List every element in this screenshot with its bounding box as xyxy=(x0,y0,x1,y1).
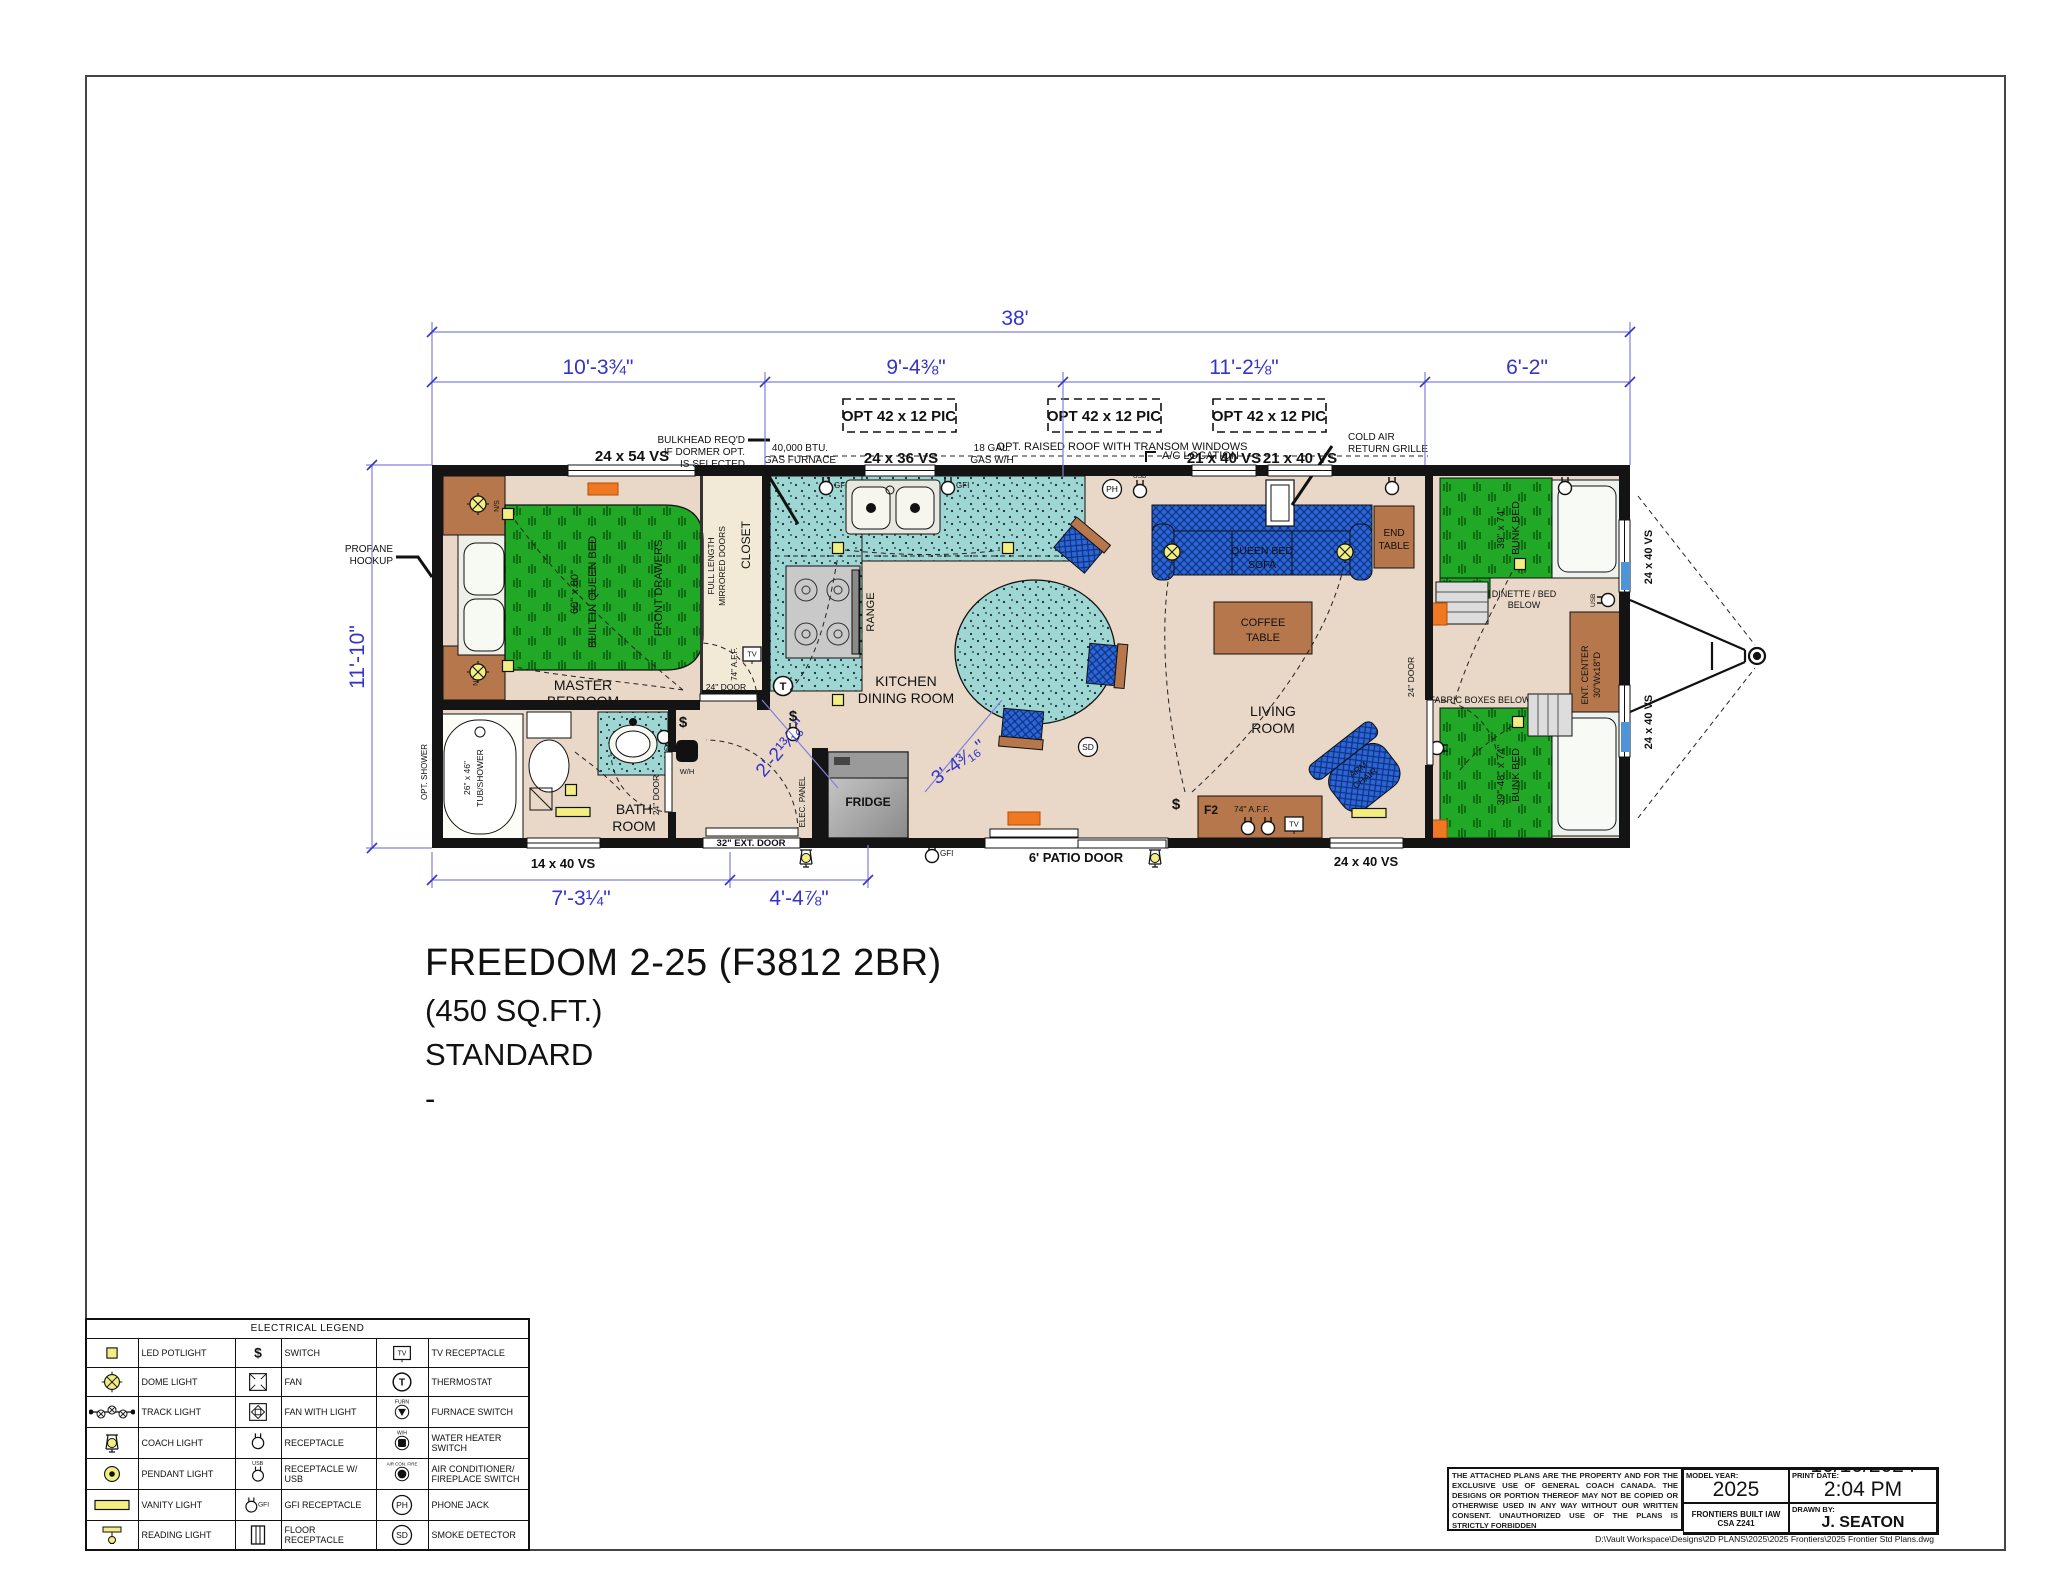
track-light-icon xyxy=(89,1399,135,1425)
legend-label: PENDANT LIGHT xyxy=(138,1459,235,1490)
ent-center-label-2: 30"Wx18"D xyxy=(1592,652,1602,698)
tv-receptacle-icon xyxy=(379,1340,425,1366)
elec-panel-label: ELEC. PANEL xyxy=(798,776,807,828)
door-label-patio: 6' PATIO DOOR xyxy=(1029,850,1124,865)
legend-header: ELECTRICAL LEGEND xyxy=(86,1319,529,1339)
legend-label: AIR CONDITIONER/ FIREPLACE SWITCH xyxy=(428,1459,529,1490)
queen-bed-label: BUILT IN QUEEN BED xyxy=(587,536,599,648)
window-24x40-bottom xyxy=(1330,838,1403,848)
drawn-by-cell: DRAWN BY: J. SEATON xyxy=(1789,1503,1937,1533)
queen-bed-size-label: 60" x 80" xyxy=(569,570,581,614)
window-label-14x40: 14 x 40 VS xyxy=(531,856,596,871)
ent-center-label-1: ENT. CENTER xyxy=(1580,645,1590,705)
legend-label: SWITCH xyxy=(281,1339,376,1368)
furnace-note-1: 40,000 BTU. xyxy=(772,443,828,454)
fan-with-light-icon xyxy=(238,1399,278,1425)
ac-location-note: A/C LOCATION xyxy=(1162,450,1239,462)
legend-label: THERMOSTAT xyxy=(428,1368,529,1397)
plan-title: FREEDOM 2-25 (F3812 2BR) xyxy=(425,942,942,985)
opt-pic-label-1: OPT 42 x 12 PIC xyxy=(842,408,956,425)
dinette-label-1: DINETTE / BED xyxy=(1492,589,1557,599)
title-block: FREEDOM 2-25 (F3812 2BR) (450 SQ.FT.) ST… xyxy=(425,942,942,1117)
legend-label: VANITY LIGHT xyxy=(138,1490,235,1521)
legend-label: FAN xyxy=(281,1368,376,1397)
fan-icon xyxy=(238,1369,278,1395)
bulkhead-note-1: BULKHEAD REQ'D xyxy=(658,435,746,446)
build-standard-text: FRONTIERS BUILT IAW CSA Z241 xyxy=(1684,1510,1788,1528)
reading-light-icon xyxy=(89,1521,135,1549)
dim-seg2: 9'-4⅜" xyxy=(886,356,945,379)
dim-bottom1: 7'-3¼" xyxy=(551,887,610,910)
legend-label: RECEPTACLE W/ USB xyxy=(281,1459,376,1490)
room-label-bath-1: BATH xyxy=(616,801,652,817)
floor-receptacle-icon xyxy=(238,1522,278,1548)
opt-shower-label: OPT. SHOWER xyxy=(420,744,429,800)
window-label-24x40-bottom: 24 x 40 VS xyxy=(1334,854,1399,869)
ac-fireplace-switch-icon xyxy=(379,1459,425,1489)
dinette-label-2: BELOW xyxy=(1508,600,1541,610)
water-heater-switch-icon xyxy=(379,1428,425,1458)
bunk-top-label: BUNK BED xyxy=(1510,501,1522,555)
door-label-bunk: 24" DOOR xyxy=(1406,657,1416,697)
drawn-by-label: DRAWN BY: xyxy=(1792,1505,1835,1514)
floor-plan-sheet: GFI USB $ SD PH T TV W/H FURN AIR CON. F… xyxy=(0,0,2048,1583)
legend-label: TV RECEPTACLE xyxy=(428,1339,529,1368)
phone-jack-icon xyxy=(379,1492,425,1518)
receptacle-icon xyxy=(238,1429,278,1457)
f2-label: F2 xyxy=(1204,803,1218,817)
model-year-cell: MODEL YEAR: 2025 xyxy=(1683,1469,1789,1503)
led-potlight-icon xyxy=(89,1340,135,1366)
dim-overall: 38' xyxy=(1001,307,1028,330)
tub-label: TUB/SHOWER xyxy=(475,749,485,807)
electrical-legend: ELECTRICAL LEGEND LED POTLIGHT SWITCH TV… xyxy=(85,1318,530,1551)
room-label-living-1: LIVING xyxy=(1250,703,1296,719)
bunk-top-size-label: 39" x 74" xyxy=(1495,507,1507,549)
build-standard-cell: FRONTIERS BUILT IAW CSA Z241 xyxy=(1683,1503,1789,1533)
dim-bottom2: 4'-4⅞" xyxy=(769,887,828,910)
fridge-label: FRIDGE xyxy=(845,795,890,809)
furnace-switch-icon xyxy=(379,1397,425,1427)
dim-seg4: 6'-2" xyxy=(1506,356,1548,379)
coffee-table-label-1: COFFEE xyxy=(1241,617,1286,629)
room-label-kitchen-1: KITCHEN xyxy=(875,673,936,689)
cold-air-note-1: COLD AIR xyxy=(1348,432,1395,443)
model-year-value: 2025 xyxy=(1684,1478,1788,1502)
legend-label: READING LIGHT xyxy=(138,1521,235,1551)
plan-dash: - xyxy=(425,1081,942,1117)
legend-label: LED POTLIGHT xyxy=(138,1339,235,1368)
info-block: THE ATTACHED PLANS ARE THE PROPERTY AND … xyxy=(1447,1467,1939,1535)
sofa-label-1: QUEEN BED xyxy=(1231,545,1293,557)
bulkhead-note-2: IF DORMER OPT. xyxy=(664,447,745,458)
range-label: RANGE xyxy=(865,592,877,631)
end-table-label-2: TABLE xyxy=(1379,541,1410,552)
legend-label: DOME LIGHT xyxy=(138,1368,235,1397)
legend-label: COACH LIGHT xyxy=(138,1428,235,1459)
drawn-by-value: J. SEATON xyxy=(1790,1514,1936,1532)
window-14x40 xyxy=(527,838,600,848)
legend-label: GFI RECEPTACLE xyxy=(281,1490,376,1521)
legend-label: PHONE JACK xyxy=(428,1490,529,1521)
disclaimer-text: THE ATTACHED PLANS ARE THE PROPERTY AND … xyxy=(1447,1467,1683,1531)
water-heater-label: W/H xyxy=(680,767,695,776)
receptacle-usb-icon xyxy=(238,1459,278,1489)
dim-left: 11'-10" xyxy=(346,625,369,689)
legend-label: SMOKE DETECTOR xyxy=(428,1521,529,1551)
room-label-kitchen-2: DINING ROOM xyxy=(858,690,954,706)
coffee-table-label-2: TABLE xyxy=(1246,632,1280,644)
opt-pic-label-3: OPT 42 x 12 PIC xyxy=(1212,408,1326,425)
closet-label: CLOSET xyxy=(739,520,753,569)
print-date-value: 10/10/2024 2:04 PM xyxy=(1790,1469,1936,1502)
tv-height-label-2: 74" A.F.F. xyxy=(1234,804,1270,814)
closet-doors-label-1: FULL LENGTH xyxy=(706,537,716,594)
room-label-bath-2: ROOM xyxy=(612,818,656,834)
fabric-boxes-label: FABRIC BOXES BELOW xyxy=(1429,695,1531,705)
window-label-21x40-b: 21 x 40 VS xyxy=(1263,450,1337,467)
plan-sqft: (450 SQ.FT.) xyxy=(425,993,942,1029)
coach-light-icon xyxy=(89,1430,135,1456)
legend-label: FAN WITH LIGHT xyxy=(281,1397,376,1428)
thermostat-icon xyxy=(379,1369,425,1395)
door-label-bedroom: 24" DOOR xyxy=(706,682,746,692)
smoke-detector-icon xyxy=(379,1522,425,1548)
opt-pic-label-2: OPT 42 x 12 PIC xyxy=(1047,408,1161,425)
end-table-label-1: END xyxy=(1383,528,1404,539)
room-label-master-1: MASTER xyxy=(554,677,612,693)
print-date-cell: PRINT DATE: 10/10/2024 2:04 PM xyxy=(1789,1469,1937,1503)
legend-label: TRACK LIGHT xyxy=(138,1397,235,1428)
window-24x40-right-bottom xyxy=(1619,685,1630,757)
closet-doors-label-2: MIRRORED DOORS xyxy=(717,526,727,606)
front-drawers-label: FRONT DRAWERS xyxy=(653,540,665,637)
vanity-light-icon xyxy=(89,1492,135,1518)
window-24x54 xyxy=(568,465,695,476)
gas-wh-note-2: GAS W/H xyxy=(970,455,1013,466)
dome-light-icon xyxy=(89,1369,135,1395)
legend-label: RECEPTACLE xyxy=(281,1428,376,1459)
nightstand-label: N/S xyxy=(494,500,501,512)
pendant-light-icon xyxy=(89,1461,135,1487)
window-label-24x40-right-top: 24 x 40 VS xyxy=(1643,530,1655,584)
door-label-bath: 24" DOOR xyxy=(651,775,661,815)
dim-seg3: 11'-2⅛" xyxy=(1209,356,1278,379)
propane-note-1: PROPANE xyxy=(345,544,393,555)
gfi-receptacle-icon xyxy=(238,1490,278,1520)
legend-label: WATER HEATER SWITCH xyxy=(428,1428,529,1459)
sofa-label-2: SOFA xyxy=(1248,559,1276,571)
plan-spec: STANDARD xyxy=(425,1037,942,1073)
bulkhead-note-3: IS SELECTED xyxy=(680,459,745,470)
legend-label: FURNACE SWITCH xyxy=(428,1397,529,1428)
switch-icon xyxy=(238,1340,278,1366)
dim-seg1: 10'-3¾" xyxy=(562,356,633,379)
bunk-bot-label: BUNK BED xyxy=(1510,748,1522,802)
window-label-24x36: 24 x 36 VS xyxy=(864,450,938,467)
file-path: D:\Vault Workspace\Designs\2D PLANS\2025… xyxy=(1447,1534,1934,1544)
door-label-ext: 32" EXT. DOOR xyxy=(717,838,786,849)
window-label-24x54: 24 x 54 VS xyxy=(595,448,669,465)
legend-label: FLOOR RECEPTACLE xyxy=(281,1521,376,1551)
cold-air-note-2: RETURN GRILLE xyxy=(1348,444,1428,455)
window-label-24x40-right-bottom: 24 x 40 VS xyxy=(1643,695,1655,749)
window-24x40-right-top xyxy=(1619,520,1630,592)
tub-size-label: 26" x 46" xyxy=(462,761,472,795)
room-label-living-2: ROOM xyxy=(1251,720,1295,736)
furnace-note-2: GAS FURNACE xyxy=(764,455,837,466)
